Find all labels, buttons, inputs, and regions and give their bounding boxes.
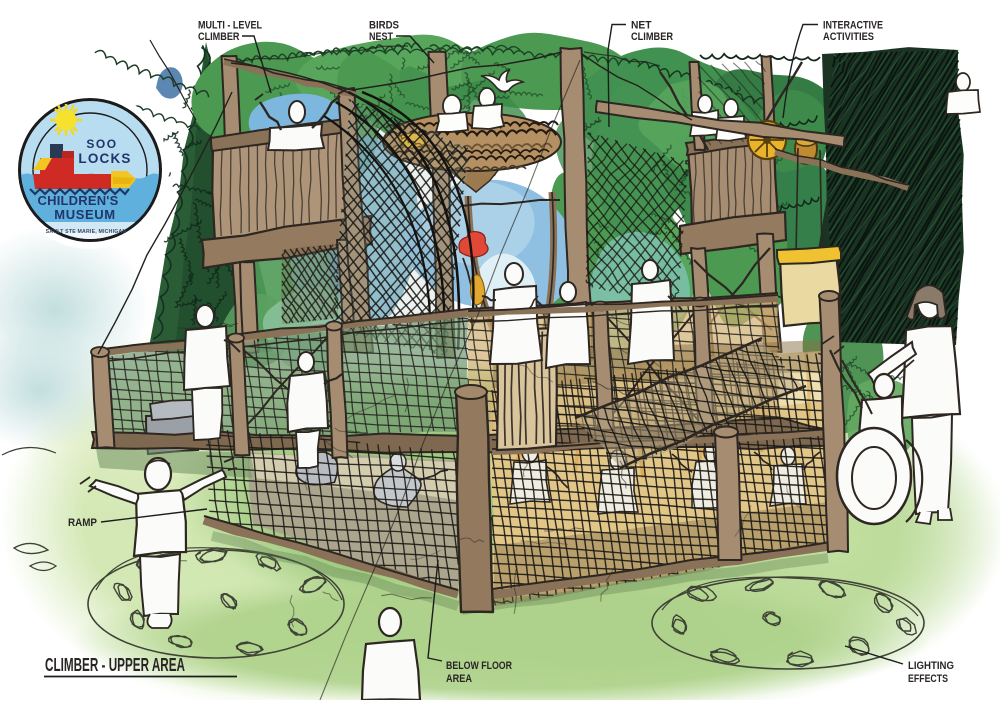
svg-text:SOO: SOO: [86, 137, 117, 151]
svg-text:AREA: AREA: [446, 673, 472, 685]
svg-text:LIGHTING: LIGHTING: [908, 660, 954, 672]
svg-text:NEST: NEST: [369, 31, 393, 43]
svg-text:ACTIVITIES: ACTIVITIES: [823, 31, 874, 43]
svg-text:LOCKS: LOCKS: [78, 151, 131, 166]
svg-text:SAULT STE MARIE, MICHIGAN: SAULT STE MARIE, MICHIGAN: [46, 229, 127, 235]
svg-text:INTERACTIVE: INTERACTIVE: [823, 19, 883, 31]
svg-text:CHILDREN'S: CHILDREN'S: [38, 193, 119, 208]
svg-text:BELOW FLOOR: BELOW FLOOR: [446, 660, 512, 672]
svg-text:CLIMBER: CLIMBER: [198, 31, 240, 43]
svg-text:NET: NET: [631, 19, 652, 31]
svg-text:MULTI - LEVEL: MULTI - LEVEL: [198, 19, 262, 31]
svg-text:CLIMBER: CLIMBER: [631, 31, 673, 43]
svg-text:EFFECTS: EFFECTS: [908, 673, 948, 685]
svg-text:RAMP: RAMP: [68, 517, 97, 529]
svg-text:MUSEUM: MUSEUM: [54, 207, 115, 222]
svg-text:CLIMBER - UPPER AREA: CLIMBER - UPPER AREA: [45, 655, 185, 675]
svg-text:BIRDS: BIRDS: [369, 19, 399, 31]
